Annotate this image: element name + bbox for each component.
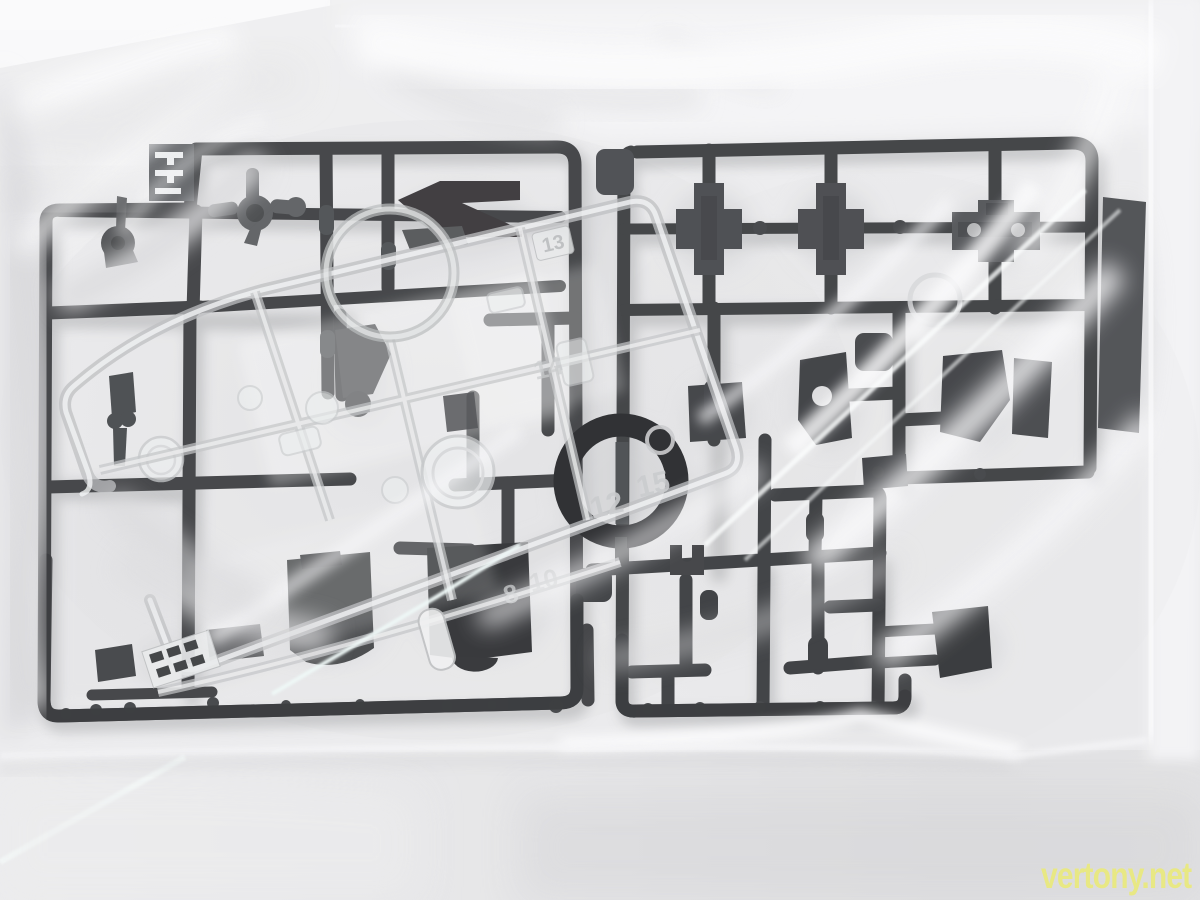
svg-text:vertony.net: vertony.net (1041, 856, 1192, 897)
